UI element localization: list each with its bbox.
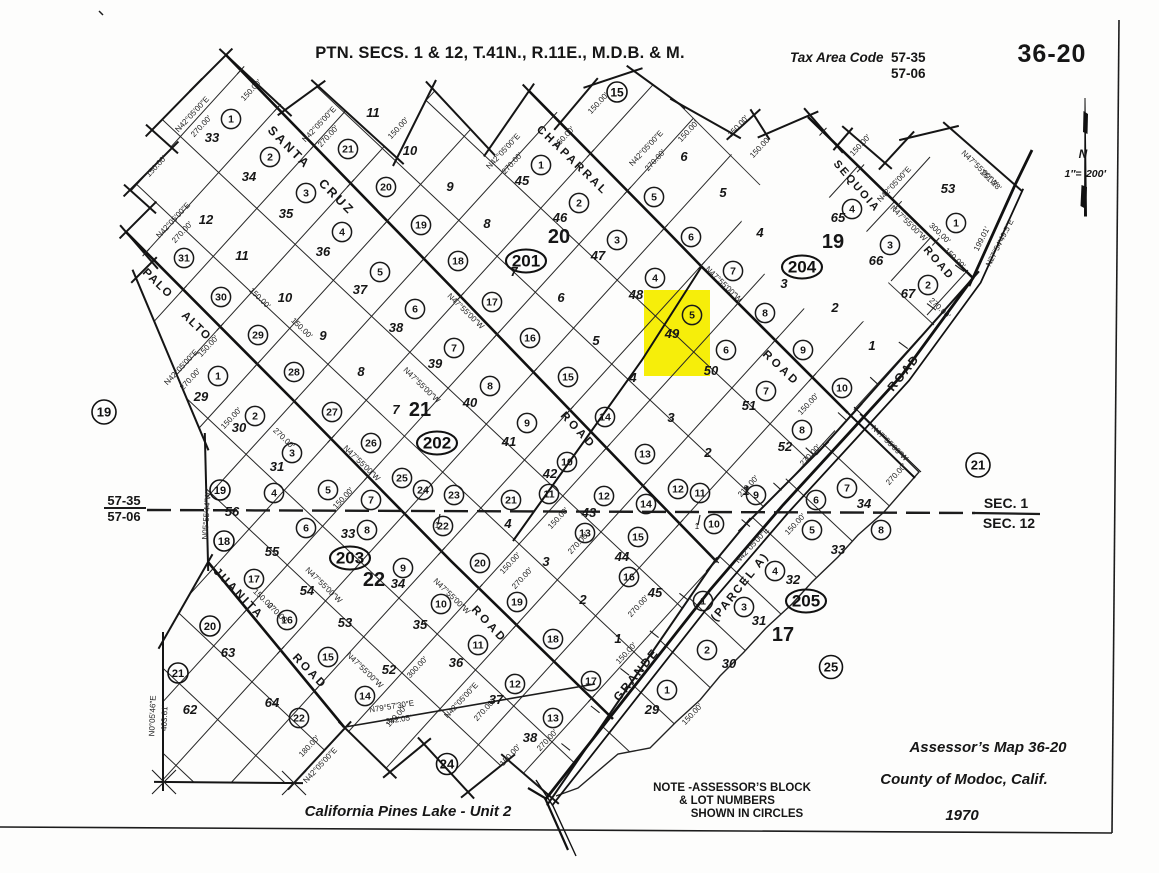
svg-text:29: 29: [193, 389, 209, 404]
svg-text:1: 1: [700, 596, 706, 608]
svg-text:57-35: 57-35: [891, 50, 926, 65]
svg-text:10: 10: [561, 457, 573, 469]
svg-text:7: 7: [763, 386, 769, 398]
svg-text:5: 5: [377, 267, 383, 279]
svg-text:4: 4: [339, 227, 345, 239]
svg-text:4: 4: [503, 516, 512, 531]
svg-text:4: 4: [271, 488, 277, 500]
svg-text:5: 5: [592, 333, 600, 348]
svg-text:45: 45: [514, 173, 530, 188]
svg-text:57-06: 57-06: [107, 509, 140, 524]
svg-text:17: 17: [772, 624, 794, 646]
svg-text:N0°05′46″E: N0°05′46″E: [147, 695, 157, 736]
svg-text:33: 33: [831, 542, 846, 557]
svg-text:10: 10: [836, 383, 848, 395]
svg-text:4: 4: [849, 204, 855, 216]
svg-text:1: 1: [538, 160, 544, 172]
svg-text:37: 37: [353, 282, 368, 297]
svg-text:3: 3: [780, 276, 788, 291]
svg-text:19: 19: [511, 597, 523, 609]
svg-text:1″=: 1″=: [1064, 168, 1081, 180]
svg-text:14: 14: [640, 499, 652, 511]
svg-text:34: 34: [391, 576, 406, 591]
svg-text:1: 1: [228, 114, 234, 126]
svg-text:17: 17: [486, 297, 498, 309]
svg-text:23: 23: [448, 490, 460, 502]
svg-text:7: 7: [510, 264, 518, 279]
svg-text:& LOT NUMBERS: & LOT NUMBERS: [679, 795, 775, 807]
svg-text:3: 3: [667, 410, 675, 425]
svg-text:12: 12: [672, 484, 684, 496]
svg-text:24: 24: [417, 485, 429, 497]
svg-text:42: 42: [542, 466, 558, 481]
svg-text:SHOWN IN CIRCLES: SHOWN IN CIRCLES: [691, 808, 804, 820]
svg-text:21: 21: [971, 458, 985, 473]
svg-text:18: 18: [218, 536, 230, 548]
svg-text:3: 3: [614, 235, 620, 247]
svg-text:15: 15: [322, 652, 334, 664]
svg-text:30: 30: [722, 656, 737, 671]
svg-text:16: 16: [524, 333, 536, 345]
svg-text:8: 8: [799, 425, 805, 437]
svg-text:20: 20: [548, 226, 570, 248]
svg-text:11: 11: [472, 640, 483, 652]
svg-text:12: 12: [199, 212, 214, 227]
svg-text:202: 202: [423, 434, 451, 453]
svg-text:12: 12: [598, 491, 610, 503]
svg-text:53: 53: [941, 181, 956, 196]
svg-text:6: 6: [680, 149, 688, 164]
svg-text:11: 11: [235, 248, 249, 263]
svg-text:27: 27: [326, 407, 338, 419]
svg-text:22: 22: [293, 713, 305, 725]
svg-text:7: 7: [451, 343, 457, 355]
svg-text:29: 29: [252, 330, 264, 342]
svg-text:53: 53: [338, 615, 353, 630]
svg-text:25: 25: [396, 473, 408, 485]
svg-text:47: 47: [590, 248, 606, 263]
svg-text:8: 8: [878, 525, 884, 537]
svg-text:Assessor’s Map 36-20: Assessor’s Map 36-20: [908, 739, 1067, 756]
svg-text:19: 19: [214, 485, 226, 497]
svg-text:44: 44: [614, 549, 630, 564]
svg-text:21: 21: [342, 144, 354, 156]
svg-text:4: 4: [755, 225, 764, 240]
svg-text:9: 9: [753, 490, 759, 502]
svg-text:County of Modoc, Calif.: County of Modoc, Calif.: [880, 771, 1047, 788]
svg-text:12: 12: [509, 679, 521, 691]
svg-text:6: 6: [723, 345, 729, 357]
svg-text:24: 24: [440, 757, 455, 772]
svg-text:9: 9: [400, 563, 406, 575]
svg-text:32: 32: [786, 572, 801, 587]
svg-text:N: N: [1079, 147, 1088, 161]
svg-text:6: 6: [813, 495, 819, 507]
svg-text:7: 7: [844, 483, 850, 495]
svg-text:11: 11: [366, 105, 380, 120]
svg-text:38: 38: [389, 320, 404, 335]
svg-text:10: 10: [278, 290, 293, 305]
svg-text:200′: 200′: [1085, 168, 1107, 180]
svg-text:7: 7: [368, 495, 374, 507]
svg-text:2: 2: [925, 280, 931, 292]
svg-text:3: 3: [741, 602, 747, 614]
svg-text:21: 21: [409, 399, 431, 421]
svg-text:1: 1: [215, 371, 221, 383]
svg-text:43: 43: [581, 505, 597, 520]
svg-text:31: 31: [752, 613, 766, 628]
svg-text:3: 3: [303, 188, 309, 200]
svg-text:25: 25: [824, 660, 838, 675]
svg-text:20: 20: [380, 182, 392, 194]
svg-text:18: 18: [452, 256, 464, 268]
svg-text:62: 62: [183, 702, 198, 717]
svg-text:21: 21: [505, 495, 517, 507]
svg-text:5: 5: [809, 525, 815, 537]
svg-text:9: 9: [524, 418, 530, 430]
svg-text:63: 63: [221, 645, 236, 660]
svg-text:57-06: 57-06: [891, 66, 926, 81]
svg-text:14: 14: [359, 691, 371, 703]
svg-text:48: 48: [628, 287, 644, 302]
svg-text:40: 40: [462, 395, 478, 410]
svg-text:205: 205: [792, 592, 820, 611]
svg-text:1: 1: [953, 218, 959, 230]
svg-text:403.61': 403.61': [160, 704, 170, 731]
svg-text:6: 6: [412, 304, 418, 316]
svg-text:2: 2: [576, 198, 582, 210]
svg-text:67: 67: [901, 286, 916, 301]
svg-text:30: 30: [215, 292, 227, 304]
svg-text:13: 13: [547, 713, 559, 725]
svg-text:2: 2: [267, 152, 273, 164]
svg-text:10: 10: [708, 519, 720, 531]
svg-text:41: 41: [501, 434, 516, 449]
svg-text:56: 56: [225, 504, 240, 519]
svg-text:19: 19: [415, 220, 427, 232]
svg-text:17: 17: [585, 676, 597, 688]
svg-text:8: 8: [364, 525, 370, 537]
svg-text:55: 55: [265, 544, 280, 559]
svg-text:66: 66: [869, 253, 884, 268]
svg-text:21: 21: [172, 668, 184, 680]
svg-text:34: 34: [857, 496, 872, 511]
svg-text:1: 1: [664, 685, 670, 697]
svg-text:1: 1: [695, 522, 700, 531]
svg-text:46: 46: [552, 210, 568, 225]
svg-text:2: 2: [830, 300, 839, 315]
svg-text:9: 9: [319, 328, 327, 343]
svg-text:39: 39: [428, 356, 443, 371]
svg-text:1: 1: [868, 338, 875, 353]
svg-text:2: 2: [578, 592, 587, 607]
svg-text:5: 5: [651, 192, 657, 204]
svg-text:49: 49: [664, 326, 680, 341]
svg-text:34: 34: [242, 169, 257, 184]
svg-text:6: 6: [688, 232, 694, 244]
svg-text:16: 16: [623, 572, 635, 584]
svg-text:9: 9: [800, 345, 806, 357]
svg-text:29: 29: [644, 702, 660, 717]
svg-text:8: 8: [483, 216, 491, 231]
svg-text:NOTE -ASSESSOR’S BLOCK: NOTE -ASSESSOR’S BLOCK: [653, 782, 812, 794]
svg-text:6: 6: [557, 290, 565, 305]
svg-text:20: 20: [204, 621, 216, 633]
svg-text:33: 33: [205, 130, 220, 145]
svg-text:18: 18: [547, 634, 559, 646]
svg-text:33: 33: [341, 526, 356, 541]
svg-text:65: 65: [831, 210, 846, 225]
svg-text:1: 1: [614, 631, 621, 646]
svg-text:10: 10: [435, 599, 447, 611]
svg-text:2: 2: [703, 445, 712, 460]
svg-text:52: 52: [778, 439, 793, 454]
svg-text:10: 10: [403, 143, 418, 158]
svg-text:19: 19: [97, 405, 111, 420]
svg-text:64: 64: [265, 695, 280, 710]
svg-text:36-20: 36-20: [1018, 40, 1087, 68]
svg-text:204: 204: [788, 258, 817, 277]
svg-text:20: 20: [474, 558, 486, 570]
svg-text:30: 30: [232, 420, 247, 435]
svg-text:California Pines Lake - Unit 2: California Pines Lake - Unit 2: [305, 803, 512, 820]
svg-text:8: 8: [357, 364, 365, 379]
svg-text:35: 35: [279, 206, 294, 221]
svg-text:8: 8: [487, 381, 493, 393]
svg-text:52: 52: [382, 662, 397, 677]
svg-text:8: 8: [762, 308, 768, 320]
svg-text:31: 31: [270, 459, 284, 474]
svg-text:SEC. 12: SEC. 12: [983, 515, 1035, 531]
svg-text:7: 7: [392, 402, 400, 417]
svg-text:2: 2: [704, 645, 710, 657]
svg-text:19: 19: [822, 231, 844, 253]
svg-text:4: 4: [628, 370, 637, 385]
svg-text:5: 5: [689, 310, 695, 322]
svg-text:31: 31: [178, 253, 190, 265]
svg-text:3: 3: [887, 240, 893, 252]
svg-text:45: 45: [647, 585, 663, 600]
svg-text:15: 15: [610, 85, 624, 99]
svg-text:3: 3: [542, 554, 550, 569]
svg-text:7: 7: [730, 266, 736, 278]
svg-text:PTN. SECS. 1 & 12, T.41N., R.1: PTN. SECS. 1 & 12, T.41N., R.11E., M.D.B…: [315, 44, 685, 62]
svg-text:1970: 1970: [945, 807, 979, 824]
svg-text:4: 4: [652, 273, 658, 285]
svg-text:14: 14: [599, 412, 611, 424]
svg-text:50: 50: [704, 363, 719, 378]
svg-text:Tax Area Code: Tax Area Code: [790, 50, 884, 65]
svg-text:11: 11: [543, 489, 554, 501]
svg-text:22: 22: [363, 569, 385, 591]
svg-text:22: 22: [437, 521, 449, 533]
svg-text:28: 28: [288, 367, 300, 379]
svg-text:4: 4: [772, 566, 778, 578]
svg-text:15: 15: [562, 372, 574, 384]
svg-text:6: 6: [303, 523, 309, 535]
svg-text:54: 54: [300, 583, 315, 598]
svg-text:11: 11: [694, 488, 705, 500]
svg-text:36: 36: [316, 244, 331, 259]
svg-text:13: 13: [639, 449, 651, 461]
svg-text:15: 15: [632, 532, 644, 544]
svg-text:5: 5: [719, 185, 727, 200]
svg-text:17: 17: [248, 574, 260, 586]
svg-text:203: 203: [336, 549, 364, 568]
svg-text:2: 2: [252, 411, 258, 423]
svg-text:SEC. 1: SEC. 1: [984, 495, 1029, 511]
svg-text:35: 35: [413, 617, 428, 632]
svg-text:5: 5: [325, 485, 331, 497]
svg-text:26: 26: [365, 438, 377, 450]
svg-text:38: 38: [523, 730, 538, 745]
svg-text:9: 9: [446, 179, 454, 194]
svg-text:57-35: 57-35: [107, 493, 140, 508]
svg-text:51: 51: [742, 398, 756, 413]
svg-text:36: 36: [449, 655, 464, 670]
